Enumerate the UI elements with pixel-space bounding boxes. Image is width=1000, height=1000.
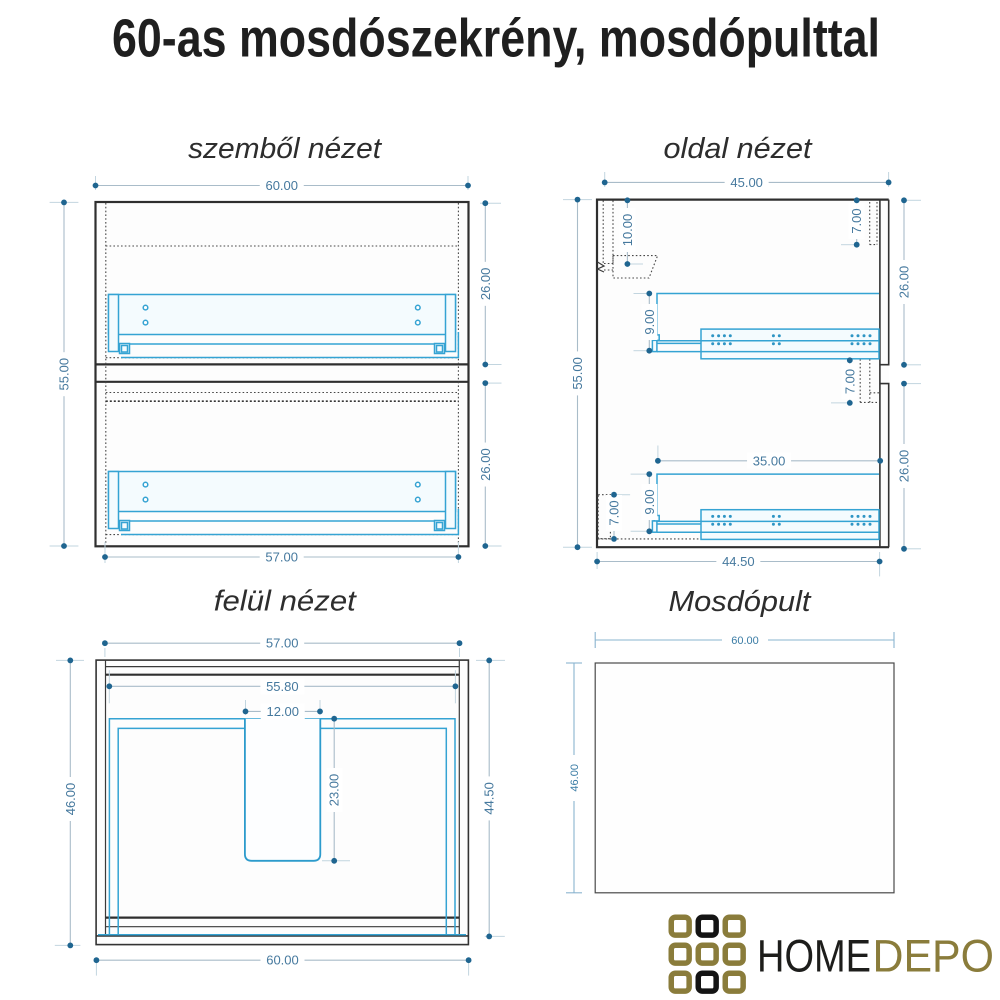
svg-text:7.00: 7.00 [849, 208, 864, 233]
svg-text:60-as mosdószekrény, mosdópult: 60-as mosdószekrény, mosdópulttal [112, 9, 880, 69]
svg-text:9.00: 9.00 [642, 489, 657, 514]
svg-text:26.00: 26.00 [478, 268, 493, 301]
svg-text:7.00: 7.00 [842, 369, 857, 394]
svg-text:12.00: 12.00 [266, 704, 299, 719]
svg-text:60.00: 60.00 [265, 178, 298, 193]
svg-text:26.00: 26.00 [897, 450, 912, 483]
svg-text:DEPO: DEPO [873, 931, 995, 982]
svg-text:44.50: 44.50 [482, 782, 497, 815]
svg-text:26.00: 26.00 [897, 266, 912, 299]
svg-text:45.00: 45.00 [730, 175, 763, 190]
svg-text:10.00: 10.00 [620, 214, 635, 247]
svg-text:oldal nézet: oldal nézet [664, 133, 814, 165]
svg-text:60.00: 60.00 [731, 635, 759, 647]
svg-text:35.00: 35.00 [753, 453, 786, 468]
svg-text:46.00: 46.00 [63, 783, 78, 816]
svg-text:57.00: 57.00 [266, 636, 299, 651]
svg-text:44.50: 44.50 [722, 554, 755, 569]
svg-text:7.00: 7.00 [607, 500, 622, 525]
svg-text:Mosdópult: Mosdópult [669, 586, 813, 618]
svg-text:55.80: 55.80 [266, 679, 299, 694]
svg-text:46.00: 46.00 [569, 764, 581, 792]
svg-text:23.00: 23.00 [327, 774, 342, 807]
svg-text:szemből nézet: szemből nézet [188, 133, 383, 165]
svg-text:9.00: 9.00 [642, 309, 657, 334]
svg-text:57.00: 57.00 [265, 550, 298, 565]
svg-text:26.00: 26.00 [478, 448, 493, 481]
svg-text:55.00: 55.00 [57, 358, 72, 391]
svg-text:60.00: 60.00 [266, 953, 299, 968]
svg-text:55.00: 55.00 [570, 357, 585, 390]
svg-text:felül nézet: felül nézet [214, 586, 358, 618]
svg-text:HOME: HOME [757, 931, 871, 982]
